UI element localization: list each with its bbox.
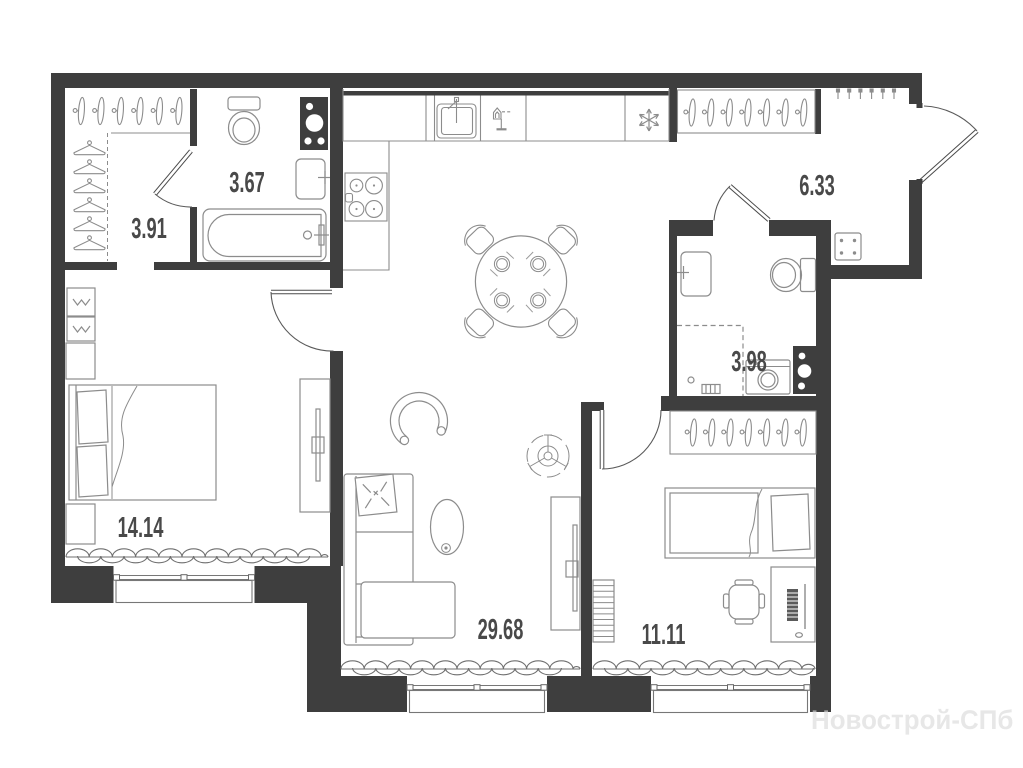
svg-text:6.33: 6.33 [799,170,835,202]
svg-text:14.14: 14.14 [118,512,164,544]
svg-text:29.68: 29.68 [478,614,524,646]
svg-text:Новострой-СПб: Новострой-СПб [811,705,1013,735]
svg-text:3.67: 3.67 [229,167,265,199]
svg-text:11.11: 11.11 [642,619,686,651]
svg-text:3.98: 3.98 [731,346,767,378]
svg-text:3.91: 3.91 [131,213,167,245]
